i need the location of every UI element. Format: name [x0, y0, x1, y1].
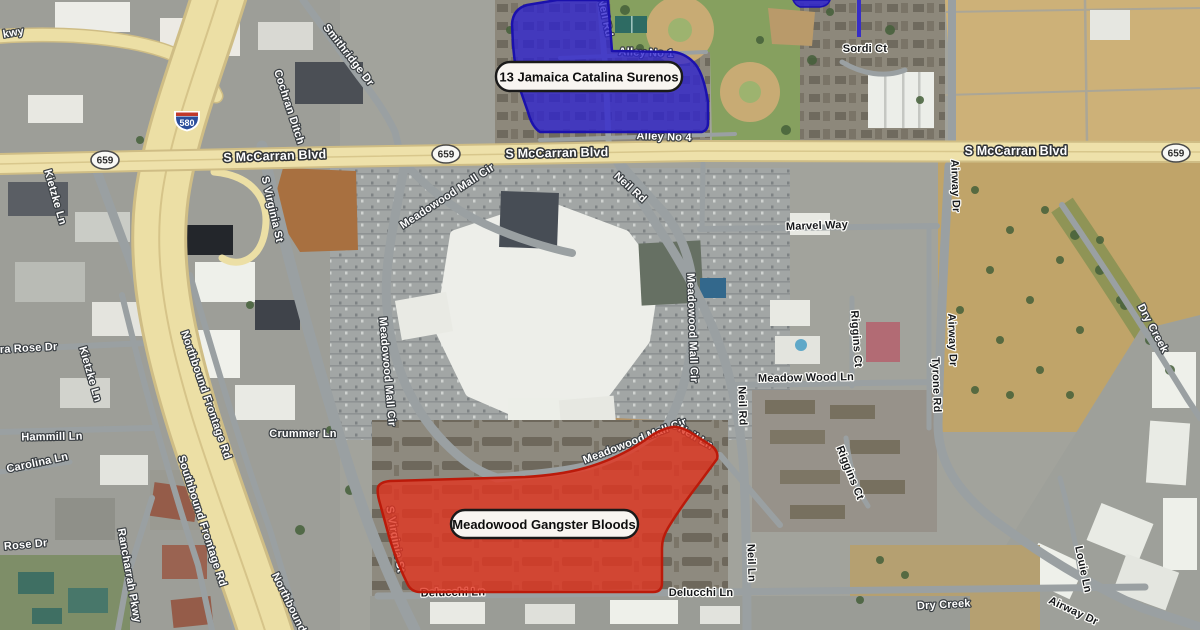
street-label: Airway Dr	[948, 159, 962, 213]
route-659-number: 659	[97, 156, 114, 167]
street-label: Sordi Ct	[843, 43, 888, 55]
interstate-580-number: 580	[179, 118, 194, 128]
street-label: Neil Ln	[744, 544, 757, 583]
route-659-number: 659	[1168, 149, 1185, 160]
street-label: S McCarran Blvd	[505, 145, 608, 161]
surenos-label-callout[interactable]: 13 Jamaica Catalina Surenos	[496, 62, 682, 91]
street-label: S McCarran Blvd	[964, 144, 1067, 158]
street-label: Marvel Way	[786, 219, 849, 233]
route-659-number: 659	[438, 150, 455, 161]
route-659-shield: 659	[91, 151, 119, 169]
surenos-callout-label: 13 Jamaica Catalina Surenos	[499, 70, 678, 85]
bloods-label-callout[interactable]: Meadowood Gangster Bloods	[451, 510, 638, 538]
street-label: Airway Dr	[945, 313, 959, 367]
street-label: Crummer Ln	[269, 428, 336, 440]
surenos-territory-fragment[interactable]	[793, 0, 830, 7]
map-canvas[interactable]: kwyS McCarran BlvdS McCarran BlvdS McCar…	[0, 0, 1200, 630]
street-label: Delucchi Ln	[669, 587, 734, 599]
surenos-territory-sliver[interactable]	[857, 0, 861, 37]
route-659-shield: 659	[1162, 144, 1190, 162]
street-label: Tyrone Rd	[929, 357, 943, 413]
street-label: Neil Rd	[735, 386, 748, 426]
route-659-shield: 659	[432, 145, 460, 163]
street-label: Hammill Ln	[21, 430, 83, 443]
street-label: Meadow Wood Ln	[758, 371, 854, 385]
bloods-callout-label: Meadowood Gangster Bloods	[452, 517, 635, 532]
